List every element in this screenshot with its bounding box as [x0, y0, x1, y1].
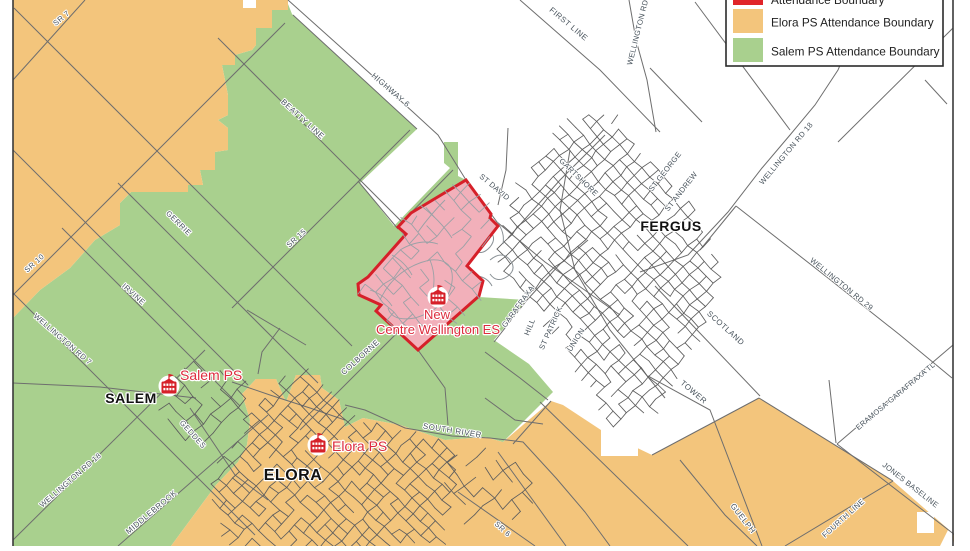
svg-text:ELORA: ELORA: [264, 467, 323, 484]
svg-text:Elora PS Attendance Boundary: Elora PS Attendance Boundary: [771, 16, 934, 30]
svg-text:Elora PS: Elora PS: [332, 438, 387, 454]
svg-text:Salem PS: Salem PS: [180, 367, 242, 383]
svg-text:Salem PS Attendance Boundary: Salem PS Attendance Boundary: [771, 45, 940, 59]
svg-text:SALEM: SALEM: [105, 390, 157, 406]
svg-text:New: New: [424, 307, 451, 322]
svg-text:Centre Wellington ES: Centre Wellington ES: [376, 322, 500, 337]
svg-text:FERGUS: FERGUS: [640, 218, 701, 234]
svg-text:Attendance Boundary: Attendance Boundary: [771, 0, 885, 7]
